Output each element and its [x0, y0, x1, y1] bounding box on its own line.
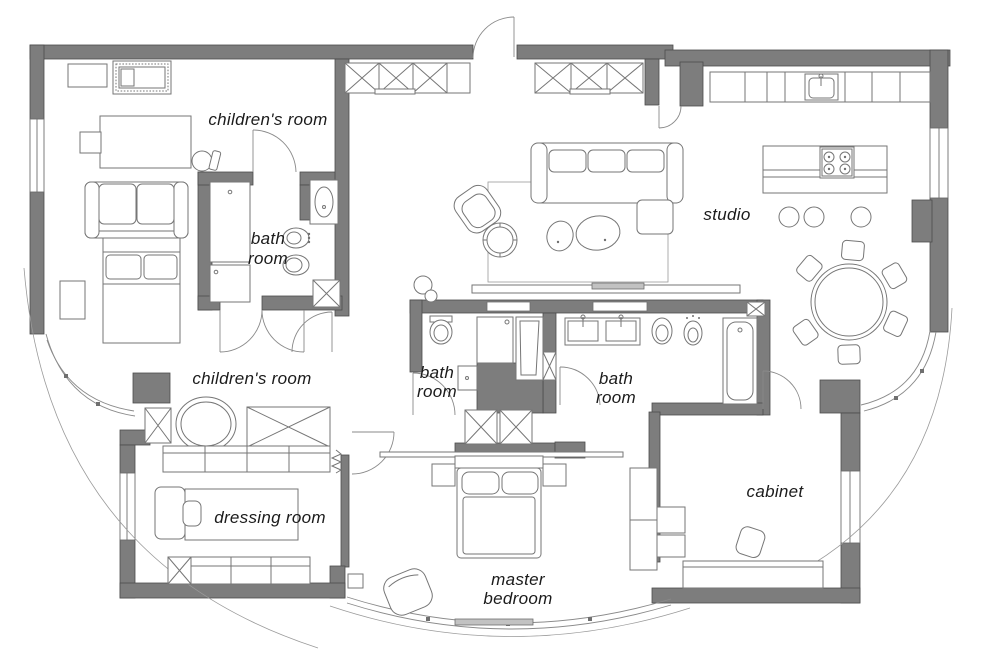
label-bath-room-1-line1: bath	[251, 229, 285, 248]
shower-2	[477, 317, 513, 363]
bar-stools	[779, 207, 871, 227]
duct-corner	[747, 302, 765, 316]
wardrobe-x-2	[500, 410, 532, 444]
toilet	[283, 228, 310, 248]
nightstand-left	[432, 464, 455, 486]
vanity-2	[458, 366, 477, 390]
cabinet-furniture	[657, 507, 823, 588]
plants	[414, 276, 437, 302]
label-master-bedroom-line2: bedroom	[483, 589, 552, 608]
bedroom-tv	[455, 619, 533, 625]
duct-shaft	[543, 352, 556, 380]
poufs	[544, 213, 622, 254]
kitchen-sink	[805, 74, 838, 100]
bath-room-3-fixtures	[565, 302, 765, 404]
double-door-bath-1	[220, 310, 304, 352]
label-bath-room-2-line1: bath	[420, 363, 454, 382]
shelves-top	[163, 446, 330, 472]
double-vanity	[565, 315, 640, 345]
wardrobe-x-large	[247, 407, 330, 447]
dining-table	[811, 264, 887, 340]
oval-crib	[176, 397, 236, 451]
washing-machine	[313, 280, 340, 307]
bedroom-armchair	[380, 565, 436, 619]
media-console	[472, 283, 740, 293]
nightstand-right	[543, 464, 566, 486]
desk-cabinet	[683, 561, 823, 588]
shower-cabinet	[210, 182, 250, 302]
desk	[100, 116, 191, 168]
wardrobe-x-small	[145, 408, 171, 443]
bidet-3	[684, 315, 702, 345]
hanger-rail-symbol	[332, 450, 341, 473]
sink	[310, 180, 338, 224]
door-bath-3	[560, 367, 600, 405]
sofa	[85, 182, 188, 238]
label-children-room-2: children's room	[192, 369, 311, 388]
floor-plan-drawing: children's room bath room children's roo…	[0, 0, 990, 664]
label-master-bedroom-line1: master	[491, 570, 546, 589]
cabinet-chair	[734, 525, 766, 559]
crib	[113, 61, 171, 94]
window-right-studio	[930, 128, 948, 198]
door-children-room-1	[253, 130, 296, 172]
label-bath-room-3-line2: room	[596, 388, 636, 407]
bedside-table	[60, 281, 85, 319]
window-cabinet	[841, 471, 860, 543]
label-dressing-room: dressing room	[214, 508, 326, 527]
entrance-door	[473, 17, 514, 58]
bathtub-3	[723, 318, 757, 404]
label-children-room-1: children's room	[208, 110, 327, 129]
cabinet-top-left	[68, 64, 107, 87]
label-bath-room-2-line2: room	[417, 382, 457, 401]
floor-plan-page: children's room bath room children's roo…	[0, 0, 990, 664]
bed-child-2	[103, 238, 180, 343]
hall-wardrobes	[345, 63, 643, 94]
living-area	[414, 143, 740, 302]
door-hall-studio	[659, 106, 681, 128]
shelves-bottom	[168, 557, 310, 584]
cabinet-shelf-1	[657, 507, 685, 533]
cooktop	[820, 147, 854, 178]
label-studio: studio	[703, 205, 750, 224]
kitchen	[710, 72, 930, 227]
tv	[592, 283, 644, 289]
dining-area	[791, 240, 908, 364]
side-table-round	[483, 223, 517, 257]
corridor-stool	[348, 574, 363, 588]
toilet-2	[430, 316, 452, 344]
wardrobe-x-1	[465, 410, 497, 444]
door-children-room-2	[292, 312, 332, 352]
cabinet-shelf-2	[657, 535, 685, 557]
label-bath-room-3-line1: bath	[599, 369, 633, 388]
bay-window-dining	[788, 308, 952, 578]
desk-chair	[192, 150, 221, 171]
bedroom-wardrobe	[630, 468, 657, 570]
window-left-1	[30, 119, 44, 192]
toilet-3	[652, 318, 672, 344]
bed-master	[455, 456, 543, 558]
side-table	[80, 132, 101, 153]
kitchen-island	[763, 146, 887, 193]
bathtub-2	[516, 317, 543, 380]
label-cabinet: cabinet	[747, 482, 805, 501]
label-bath-room-1-line2: room	[248, 249, 288, 268]
